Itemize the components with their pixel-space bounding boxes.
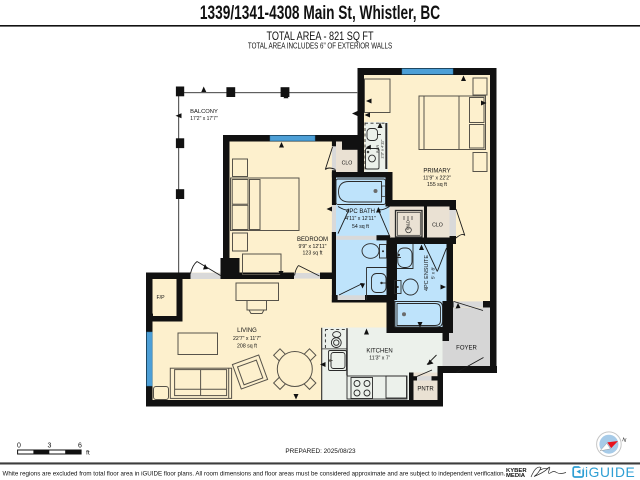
svg-text:1339/1341-4308 Main St, Whistl: 1339/1341-4308 Main St, Whistler, BC [200, 2, 440, 24]
svg-text:PNTR: PNTR [417, 387, 434, 393]
svg-text:BALCONY: BALCONY [190, 109, 218, 115]
svg-text:54 sq ft: 54 sq ft [352, 224, 370, 230]
svg-text:22'7" x 11'7": 22'7" x 11'7" [233, 336, 261, 342]
svg-text:3: 3 [47, 443, 51, 450]
svg-text:4PC ENSUITE: 4PC ENSUITE [424, 255, 430, 291]
svg-text:PRIMARY: PRIMARY [423, 169, 450, 175]
svg-text:TOTAL AREA INCLUDES 6" OF EXTE: TOTAL AREA INCLUDES 6" OF EXTERIOR WALLS [248, 41, 392, 51]
svg-text:White regions are excluded fro: White regions are excluded from total fl… [3, 470, 506, 477]
svg-text:17'2" x 17'7": 17'2" x 17'7" [190, 116, 218, 122]
svg-text:ft: ft [86, 450, 90, 457]
svg-text:6: 6 [78, 443, 82, 450]
svg-text:LIVING: LIVING [237, 328, 257, 334]
svg-text:MEDIA: MEDIA [506, 473, 526, 479]
svg-text:4PC BATH: 4PC BATH [346, 209, 375, 215]
svg-text:11'3" x 7': 11'3" x 7' [369, 356, 389, 362]
svg-text:KITCHEN: KITCHEN [366, 349, 392, 355]
svg-text:155 sq ft: 155 sq ft [427, 182, 447, 188]
svg-text:F/P: F/P [156, 295, 165, 301]
svg-text:123 sq ft: 123 sq ft [303, 251, 323, 257]
svg-text:CLO: CLO [342, 161, 353, 167]
svg-text:9'9" x 12'11": 9'9" x 12'11" [298, 244, 326, 250]
svg-text:iGUIDE: iGUIDE [585, 465, 635, 480]
svg-text:4'11" x 12'11": 4'11" x 12'11" [345, 216, 376, 222]
svg-text:11'9" x 22'2": 11'9" x 22'2" [423, 176, 451, 182]
svg-text:0: 0 [17, 443, 21, 450]
svg-text:BEDROOM: BEDROOM [297, 237, 328, 243]
svg-text:PREPARED: 2025/08/23: PREPARED: 2025/08/23 [285, 448, 356, 455]
svg-text:CLO: CLO [432, 223, 443, 229]
svg-text:208 sq ft: 208 sq ft [237, 344, 257, 350]
svg-text:2'3" x 4'11": 2'3" x 4'11" [380, 139, 385, 159]
svg-text:FOYER: FOYER [456, 346, 477, 352]
